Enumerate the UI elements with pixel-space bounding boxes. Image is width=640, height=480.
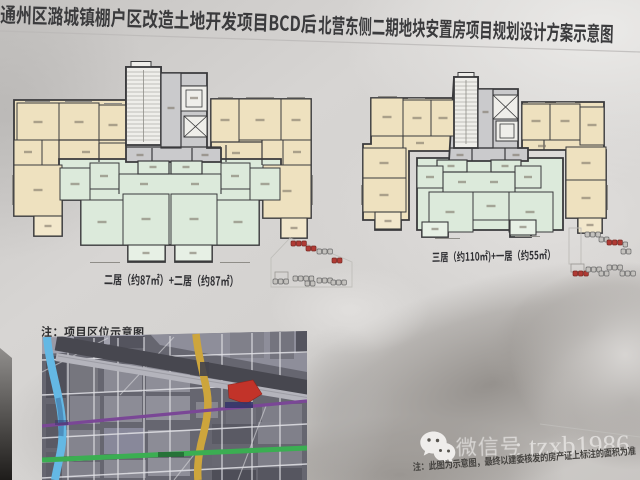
svg-text:: tzxb1986: : tzxb1986 bbox=[514, 429, 629, 462]
